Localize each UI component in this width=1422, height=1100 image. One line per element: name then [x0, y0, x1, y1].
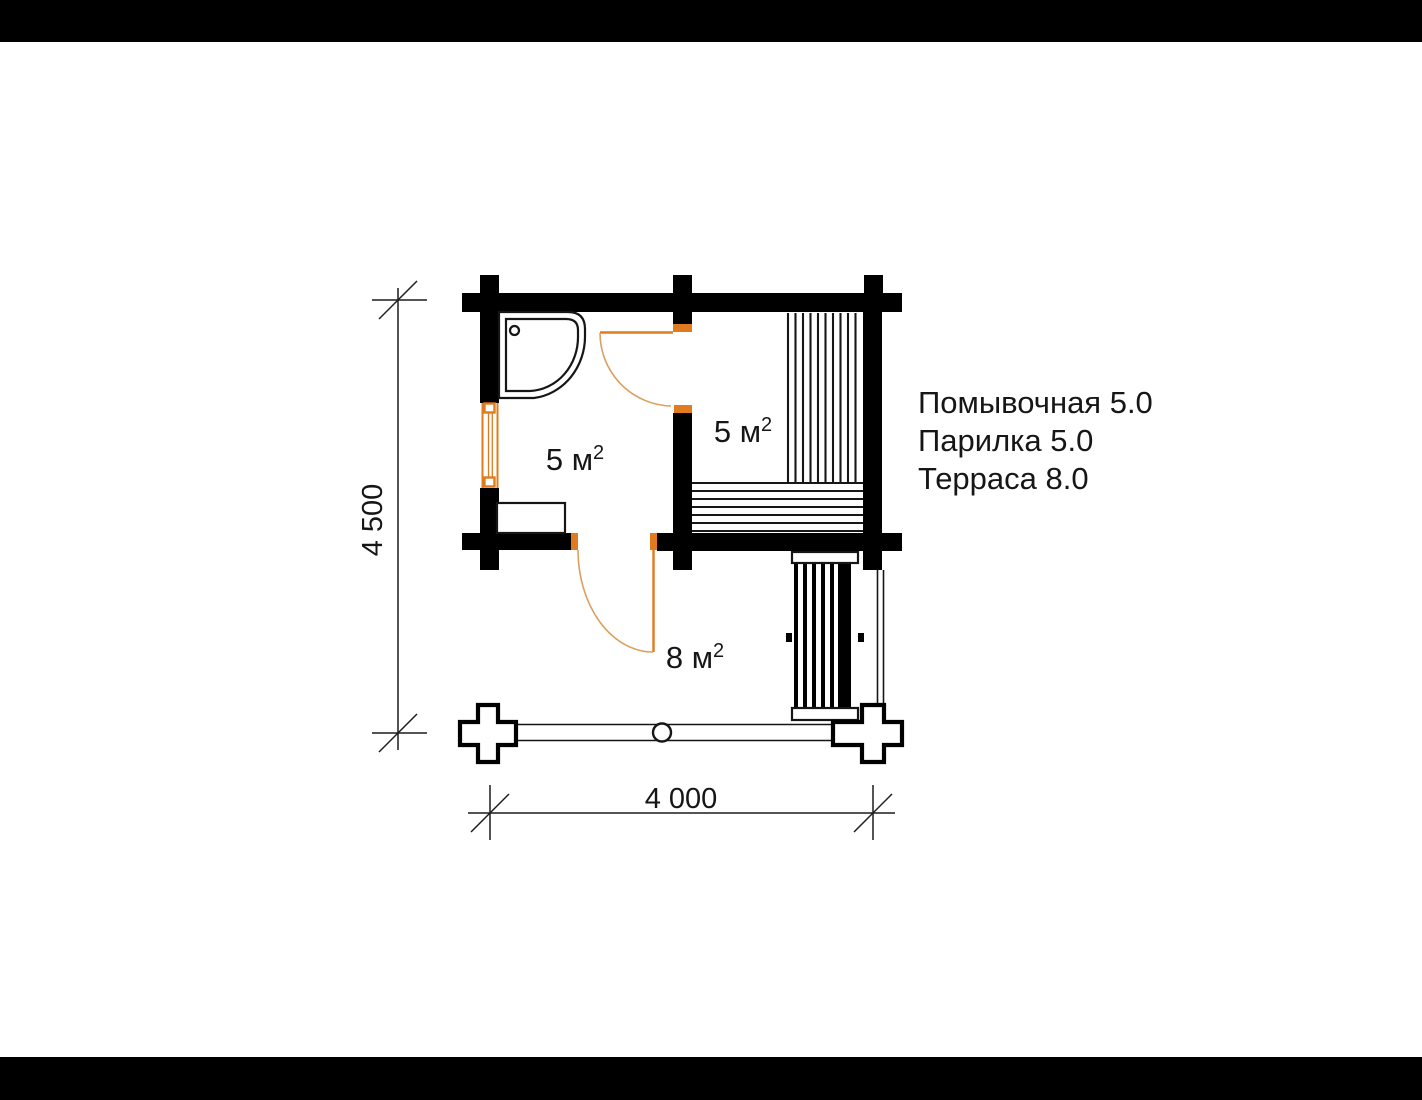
- wall-right: [863, 312, 882, 533]
- wall-stub-right-below: [863, 551, 882, 570]
- room-area-value: 8 м: [666, 640, 713, 675]
- step-slat: [803, 560, 807, 710]
- step-slat-thick: [838, 560, 851, 710]
- steam-room-bench-horizontal: [692, 483, 863, 531]
- door-jamb: [673, 324, 692, 332]
- dimension-height-label: 4 500: [357, 484, 389, 557]
- screenshot-stage: 4 500 4 000 5 м2 5 м2 8 м2 Помывочная 5.…: [0, 0, 1422, 1100]
- room-area-superscript: 2: [593, 442, 604, 464]
- door-jamb: [674, 405, 692, 413]
- window-cap-bottom: [485, 478, 495, 487]
- steps-side-tab: [786, 633, 792, 642]
- legend-item-washing: Помывочная 5.0: [918, 385, 1153, 420]
- door-jamb: [571, 533, 578, 550]
- wall-band-middle: [657, 533, 902, 551]
- wall-band-bottom-left: [462, 533, 571, 550]
- washing-room-bench: [497, 503, 565, 533]
- floor-plan-svg: 4 500 4 000 5 м2 5 м2 8 м2 Помывочная 5.…: [0, 0, 1422, 1100]
- door-jamb: [650, 533, 657, 550]
- wall-stub-top-left: [480, 275, 499, 293]
- step-slat: [794, 560, 798, 710]
- step-slat: [830, 560, 834, 710]
- window-cap-top: [485, 404, 495, 413]
- step-slat: [812, 560, 816, 710]
- legend-item-terrace: Терраса 8.0: [918, 461, 1089, 496]
- legend-item-steam: Парилка 5.0: [918, 423, 1093, 458]
- shower-drain: [510, 326, 519, 335]
- wall-stub-top-right: [864, 275, 883, 293]
- steps-top-cap: [792, 552, 858, 563]
- dimension-width-label: 4 000: [645, 783, 718, 815]
- steps-side-tab: [858, 633, 864, 642]
- room-area-superscript: 2: [713, 640, 724, 662]
- room-area-superscript: 2: [761, 414, 772, 436]
- room-area-value: 5 м: [714, 414, 761, 449]
- wall-left-upper: [480, 312, 499, 403]
- room-area-value: 5 м: [546, 442, 593, 477]
- steps-bottom-cap: [792, 708, 858, 720]
- wall-stub-top-middle: [673, 275, 692, 325]
- step-slat: [821, 560, 825, 710]
- terrace-post: [653, 724, 671, 742]
